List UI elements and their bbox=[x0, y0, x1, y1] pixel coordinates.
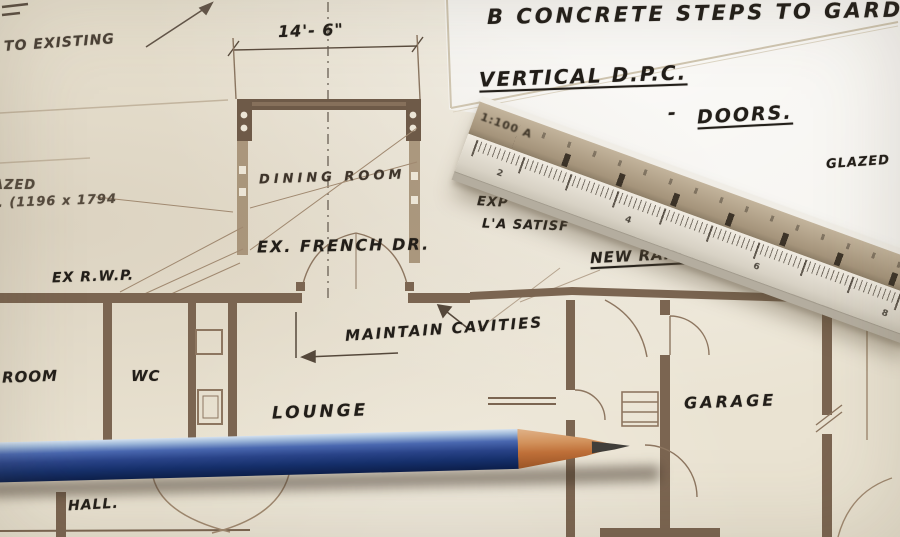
room-label-wc: WC bbox=[131, 369, 161, 384]
note-glazed-left: GLAZED bbox=[0, 179, 36, 192]
pencil-tip bbox=[591, 426, 630, 467]
note-ex-french-dr: EX. FRENCH DR. bbox=[257, 236, 430, 255]
room-label-broom: B'ROOM bbox=[0, 369, 58, 387]
note-glazed-size: J. (1196 x 1794 bbox=[0, 193, 117, 210]
note-doors: DOORS. bbox=[697, 104, 793, 128]
room-label-hall: HALL. bbox=[68, 497, 119, 514]
ruler-number: 4 bbox=[623, 215, 632, 227]
misc-lines bbox=[0, 100, 228, 163]
ruler-number: 6 bbox=[752, 261, 761, 273]
leader-to-existing bbox=[146, 3, 212, 47]
corner-marks bbox=[2, 4, 28, 15]
room-label-garage: GARAGE bbox=[684, 392, 777, 411]
note-to-existing: TO EXISTING bbox=[4, 32, 116, 54]
note-ex-rwp: EX R.W.P. bbox=[52, 269, 135, 286]
blueprint-photo: B CONCRETE STEPS TO GARDEN VERTICAL D.P.… bbox=[0, 0, 900, 537]
wc-fixtures bbox=[196, 330, 222, 424]
note-maintain-cavities: MAINTAIN CAVITIES bbox=[345, 315, 544, 344]
doors-dash: - bbox=[668, 104, 678, 123]
ruler-number: 8 bbox=[880, 308, 889, 320]
note-satisf: L'A SATISF bbox=[482, 217, 569, 233]
dimension-lines bbox=[228, 35, 423, 99]
garage-details bbox=[575, 300, 892, 537]
garage-walls bbox=[572, 287, 832, 537]
room-label-dining: DINING ROOM bbox=[259, 168, 406, 186]
dimension-label: 14'- 6" bbox=[278, 22, 344, 40]
room-label-lounge: LOUNGE bbox=[272, 402, 369, 422]
ruler-number: 2 bbox=[495, 168, 504, 180]
